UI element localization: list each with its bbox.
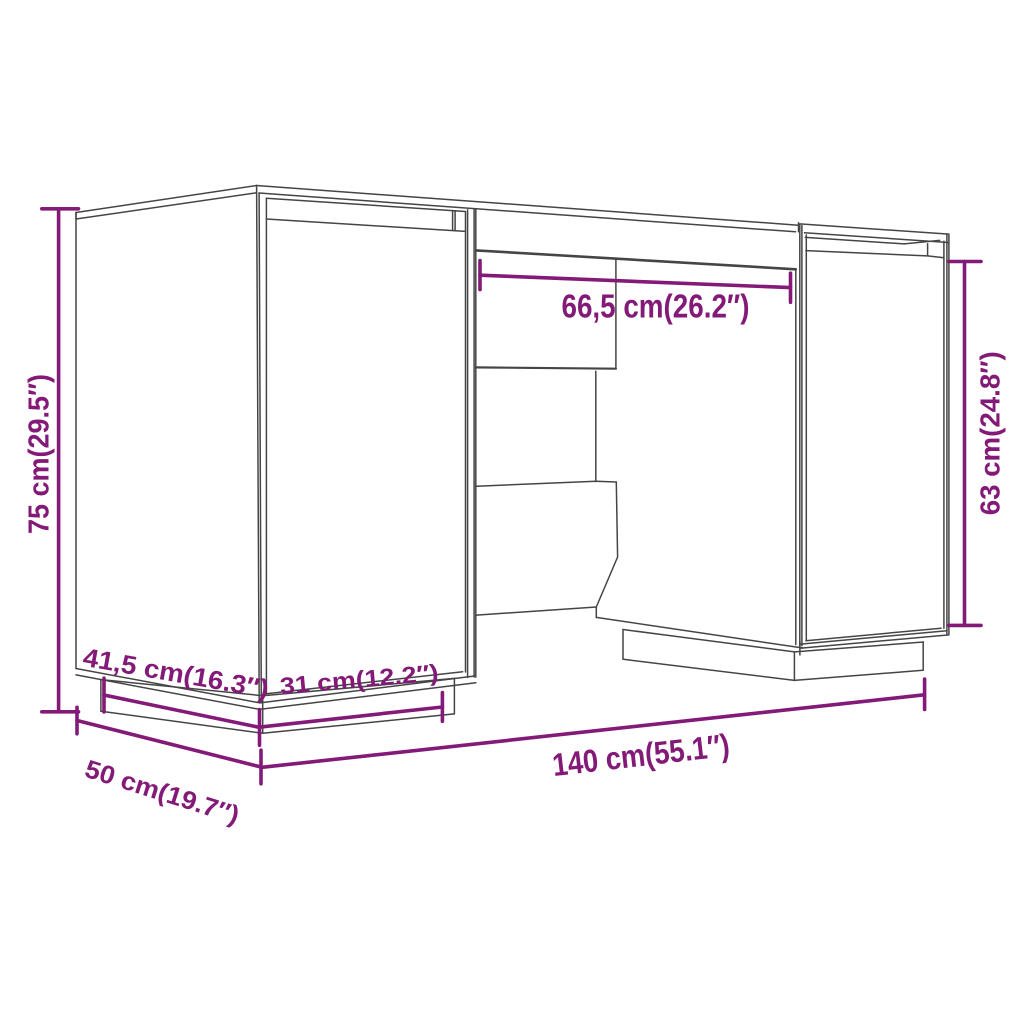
svg-text:140 cm(55.1″): 140 cm(55.1″) [550,727,731,783]
svg-text:31 cm(12.2″): 31 cm(12.2″) [279,659,440,699]
svg-text:63 cm(24.8″): 63 cm(24.8″) [975,351,1006,515]
svg-text:66,5 cm(26.2″): 66,5 cm(26.2″) [562,288,750,325]
svg-text:50 cm(19.7″): 50 cm(19.7″) [81,755,242,830]
svg-text:75 cm(29.5″): 75 cm(29.5″) [23,374,55,534]
